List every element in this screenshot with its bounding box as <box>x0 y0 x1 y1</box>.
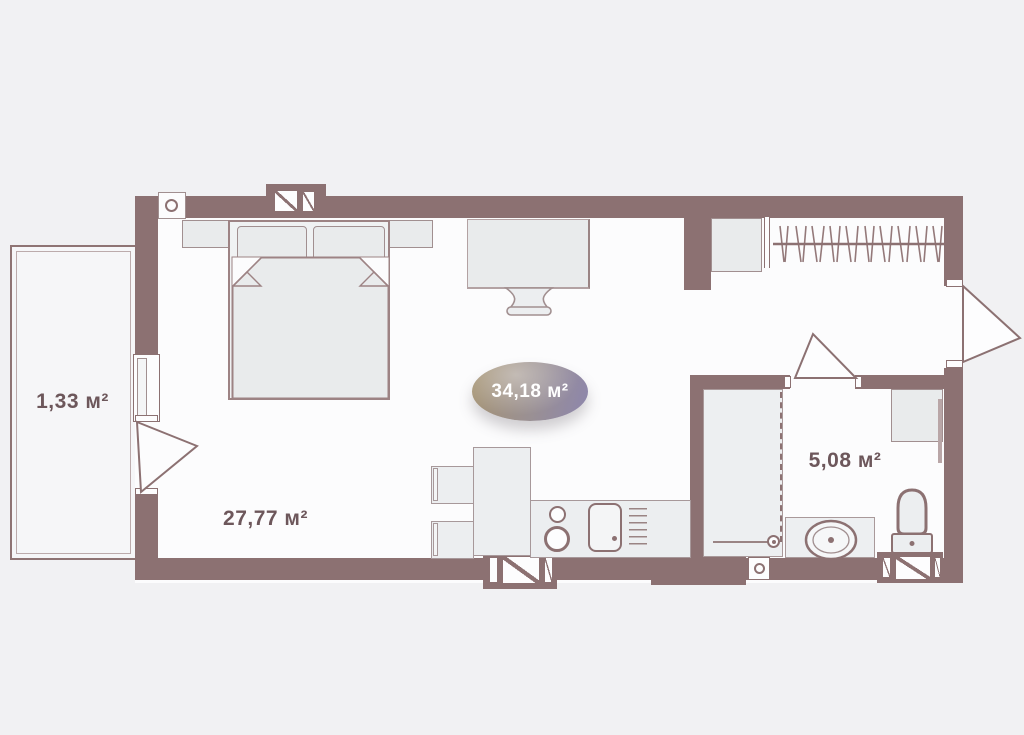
bathroom-area-label: 5,08 м² <box>790 449 900 473</box>
floor-drain-circle-icon <box>754 563 765 574</box>
wardrobe-hangers-icon <box>770 221 948 267</box>
shower-drain-dot <box>772 540 776 544</box>
balcony-window-leaf <box>137 358 147 418</box>
wall-bathroom-left <box>690 375 703 558</box>
riser-circle-icon <box>165 199 178 212</box>
dining-table <box>473 447 531 556</box>
bathroom-door-swing-icon <box>790 328 862 384</box>
cooktop-burner-large-icon <box>544 526 570 552</box>
chair-backrest <box>433 523 438 556</box>
room-area-label: 27,77 м² <box>193 507 338 531</box>
toilet-icon <box>888 484 936 558</box>
wall-top <box>135 196 963 218</box>
dining-chair-bottom <box>431 521 474 559</box>
blanket <box>231 256 390 400</box>
hall-cabinet <box>711 218 762 272</box>
balcony-door-swing-icon <box>132 416 204 498</box>
towel-rail <box>938 399 942 463</box>
vent-shaft-top <box>266 184 326 218</box>
wall-right-lower <box>944 368 963 583</box>
chair-backrest <box>433 468 438 501</box>
shower <box>703 389 783 557</box>
sink-drain-icon <box>612 536 617 541</box>
shower-glass-dashed <box>780 392 782 542</box>
entry-door-swing-icon <box>958 278 1024 373</box>
wall-bathroom-top-right <box>855 375 945 389</box>
desk-chair-icon <box>500 286 558 320</box>
total-area-badge: 34,18 м² <box>472 362 588 421</box>
wall-bottom-main <box>135 558 660 580</box>
wall-partition-room-hall <box>684 218 711 290</box>
dining-chair-top <box>431 466 474 504</box>
washbasin-icon <box>802 518 860 562</box>
balcony-area-label: 1,33 м² <box>20 390 125 414</box>
cooktop-burner-small-icon <box>549 506 566 523</box>
washing-machine <box>891 389 943 442</box>
shower-fixture-line <box>713 541 769 543</box>
wall-bathroom-top-left <box>690 375 790 389</box>
kitchen-sink <box>588 503 622 552</box>
floor-plan: 1,33 м² 27,77 м² 5,08 м² 34,18 м² <box>0 0 1024 735</box>
total-area-badge-text: 34,18 м² <box>491 381 568 403</box>
sink-drainer-lines <box>629 508 647 549</box>
desk <box>467 219 590 289</box>
wall-left-upper <box>135 196 158 356</box>
